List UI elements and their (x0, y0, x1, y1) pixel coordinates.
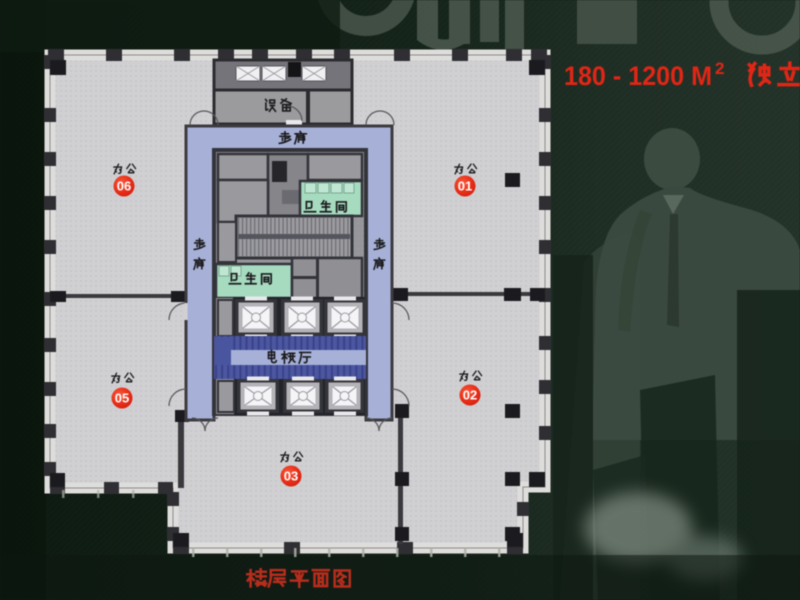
svg-text:01: 01 (458, 179, 472, 194)
svg-text:180 - 1200 M: 180 - 1200 M (564, 61, 712, 91)
svg-text:2: 2 (715, 59, 724, 78)
svg-text:05: 05 (115, 391, 129, 406)
svg-text:02: 02 (463, 388, 477, 403)
svg-text:03: 03 (284, 469, 298, 484)
svg-text:06: 06 (117, 179, 131, 194)
